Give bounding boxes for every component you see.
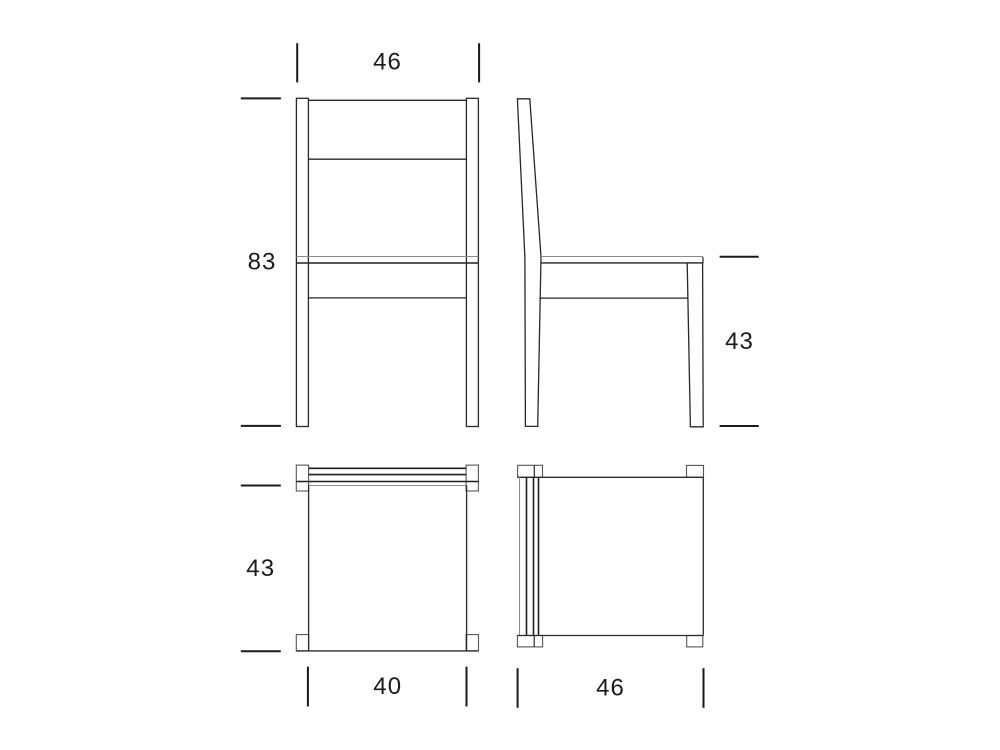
svg-text:40: 40 [373,673,402,700]
svg-text:43: 43 [725,328,754,355]
svg-text:46: 46 [596,675,625,702]
svg-text:43: 43 [246,555,275,582]
svg-text:46: 46 [373,49,402,76]
svg-text:83: 83 [248,249,277,276]
